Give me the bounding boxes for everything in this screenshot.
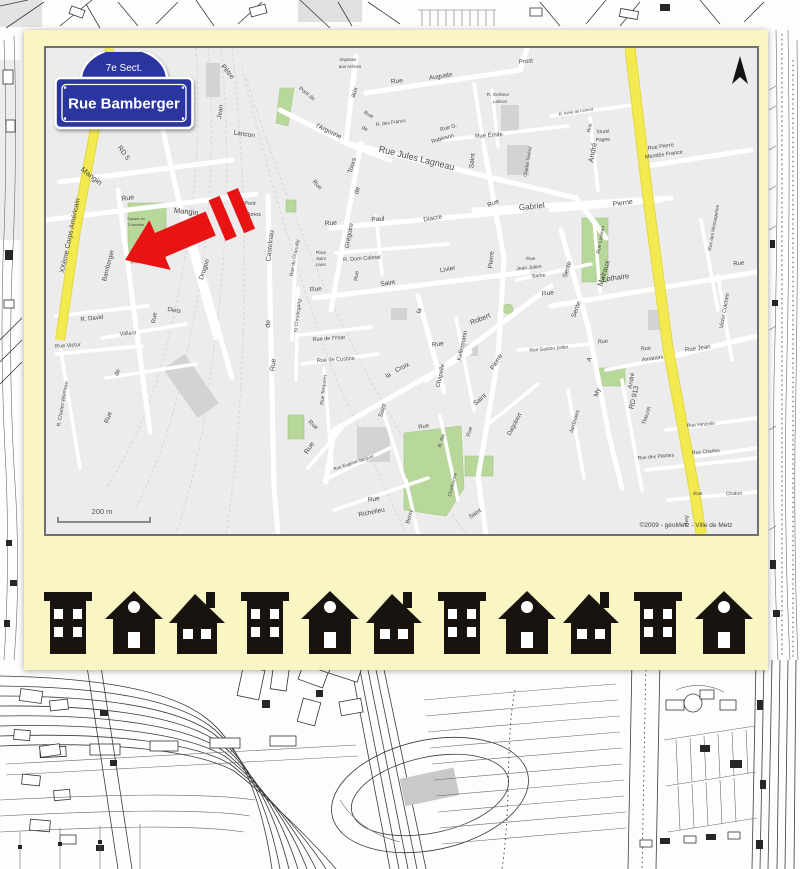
house-icon-gable — [104, 590, 164, 656]
street-label: Sturel — [596, 129, 609, 136]
house-icon-chimney — [366, 590, 426, 656]
street-label: Rue — [310, 285, 323, 293]
street-label: Rue — [526, 256, 536, 263]
houses-row — [38, 586, 754, 656]
house-icon-building — [38, 590, 98, 656]
house-icon-chimney — [563, 590, 623, 656]
house-icon-building — [628, 590, 688, 656]
street-label: Chanoine — [128, 223, 144, 227]
map-attribution: ©2009 - géoMetz - Ville de Metz — [640, 521, 733, 529]
street-label: Rue — [542, 289, 555, 297]
street-label: Rue — [391, 77, 404, 85]
street-label: Rue — [598, 339, 609, 346]
street-label: Chabot — [726, 491, 743, 498]
street-label: Rue — [269, 358, 277, 372]
street-label: Rue — [325, 220, 338, 228]
street-label: Rue — [693, 491, 703, 497]
street-sign: 7e Sect. Rue Bamberger — [54, 52, 194, 135]
sign-street-name: Rue Bamberger — [68, 96, 180, 113]
street-label: Place — [316, 250, 327, 255]
street-label: Rue — [353, 271, 360, 282]
screenshot-root: { "postcard": { "sign": { "section": "7e… — [0, 0, 800, 869]
house-icon-gable — [497, 590, 557, 656]
street-label: Rue — [733, 260, 745, 267]
street-label: R. Gerbeur — [487, 92, 510, 97]
street-label: Paul — [371, 216, 385, 224]
house-icon-gable — [300, 590, 360, 656]
street-label: Barbe — [532, 272, 546, 279]
house-icon-gable — [694, 590, 754, 656]
scale-label: 200 m — [92, 507, 113, 516]
street-label: Impasse — [339, 57, 357, 62]
street-label: Livier — [316, 262, 327, 267]
sign-section-label: 7e Sect. — [106, 63, 143, 74]
street-label: Lebrun — [493, 99, 508, 104]
house-icon-building — [432, 590, 492, 656]
street-label: de — [265, 320, 273, 329]
street-label: Square du — [127, 217, 145, 221]
postcard: PètreJeanLanconManginRD 5XXème Corps Amé… — [24, 30, 768, 670]
street-label: Rue — [641, 346, 652, 353]
street-label: Prost — [519, 58, 534, 65]
street-label: Pagne — [596, 137, 611, 144]
street-label: Saint — [316, 256, 326, 261]
house-icon-building — [235, 590, 295, 656]
street-label: Pont — [244, 201, 256, 207]
street-label: aux Arènes — [339, 64, 362, 69]
house-icon-chimney — [169, 590, 229, 656]
